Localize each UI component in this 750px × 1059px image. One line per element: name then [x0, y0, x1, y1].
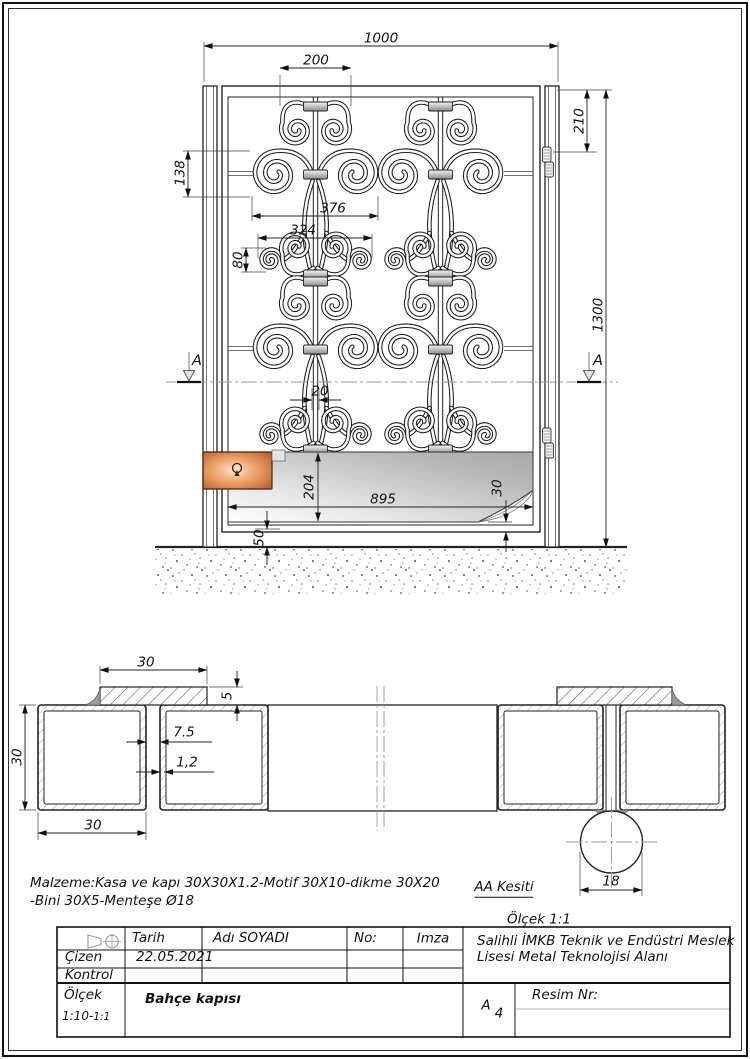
rail-section: [268, 705, 497, 811]
lock-strike: [272, 450, 285, 461]
tb-olcek-label: Ölçek: [64, 989, 102, 1003]
ground: [155, 547, 627, 594]
drawing-sheet: 1000 200 210 1300 138 376 324 80 20 204 …: [0, 0, 750, 1059]
dim-tube-width: 30: [84, 819, 101, 833]
tb-imza-label: Imza: [417, 932, 450, 946]
tb-adi-label: Adı SOYADI: [213, 932, 289, 946]
tb-no-label: No:: [354, 932, 377, 946]
dim-frame-gap: 7.5: [173, 726, 194, 740]
tb-olcek-value-small: 1:1: [93, 1011, 110, 1023]
tb-olcek-value: 1:10-1:1: [62, 1010, 110, 1023]
sheet-panel: [228, 452, 533, 522]
front-view: [155, 42, 627, 594]
dim-motif-width: 376: [320, 202, 346, 216]
dim-ground-clearance: 50: [253, 529, 267, 546]
tb-kontrol-label: Kontrol: [65, 969, 113, 983]
dim-leg-gap: 20: [311, 385, 328, 399]
section-scale-note: Ölçek 1:1: [507, 913, 571, 927]
tb-school-line2: Lisesi Metal Teknolojisi Alanı: [477, 951, 668, 965]
tb-drawing-title: Bahçe kapısı: [145, 993, 241, 1007]
dim-tube-height: 30: [11, 748, 25, 765]
dim-small-scroll-width: 324: [290, 224, 316, 238]
tb-resim-label: Resim Nr:: [532, 989, 598, 1003]
dim-small-scroll-height: 80: [232, 251, 246, 268]
material-note-line2: -Bini 30X5-Menteşe Ø18: [30, 895, 194, 909]
section-marker-left: A: [192, 354, 202, 369]
dim-panel-bottom-offset: 30: [491, 479, 505, 496]
dim-total-width: 1000: [364, 32, 398, 46]
tb-school-line1: Salihli İMKB Teknik ve Endüstri Meslek: [477, 935, 734, 949]
dim-hinge-diameter: 18: [602, 875, 619, 889]
dim-scroll-height: 138: [174, 160, 188, 186]
dim-wall-thickness: 1,2: [176, 756, 197, 770]
dim-bini-thickness: 5: [221, 692, 235, 701]
material-note-line1: Malzeme:Kasa ve kapı 30X30X1.2-Motif 30X…: [30, 877, 440, 891]
projection-symbol-icon: [88, 933, 121, 950]
dim-panel-width: 895: [370, 493, 396, 507]
section-marker-right: A: [593, 354, 603, 369]
tb-paper-size: A: [481, 999, 490, 1013]
bini-plate-right: [557, 687, 687, 705]
tb-paper-size-sub: 4: [495, 1007, 504, 1021]
dim-total-height: 1300: [592, 298, 606, 332]
tb-cizen-label: Çizen: [65, 951, 102, 965]
dim-motif-top-width: 200: [303, 54, 329, 68]
tb-tarih-label: Tarih: [132, 932, 165, 946]
section-label: AA Kesiti: [474, 881, 533, 898]
bini-plate-left: [85, 687, 207, 705]
dim-hinge-offset: 210: [573, 108, 587, 134]
section-view: [19, 666, 725, 896]
tb-tarih-value: 22.05.2021: [136, 951, 213, 965]
tb-olcek-value-main: 1:10-: [62, 1009, 93, 1023]
dim-panel-height: 204: [303, 474, 317, 500]
dim-bini-width: 30: [137, 656, 154, 670]
